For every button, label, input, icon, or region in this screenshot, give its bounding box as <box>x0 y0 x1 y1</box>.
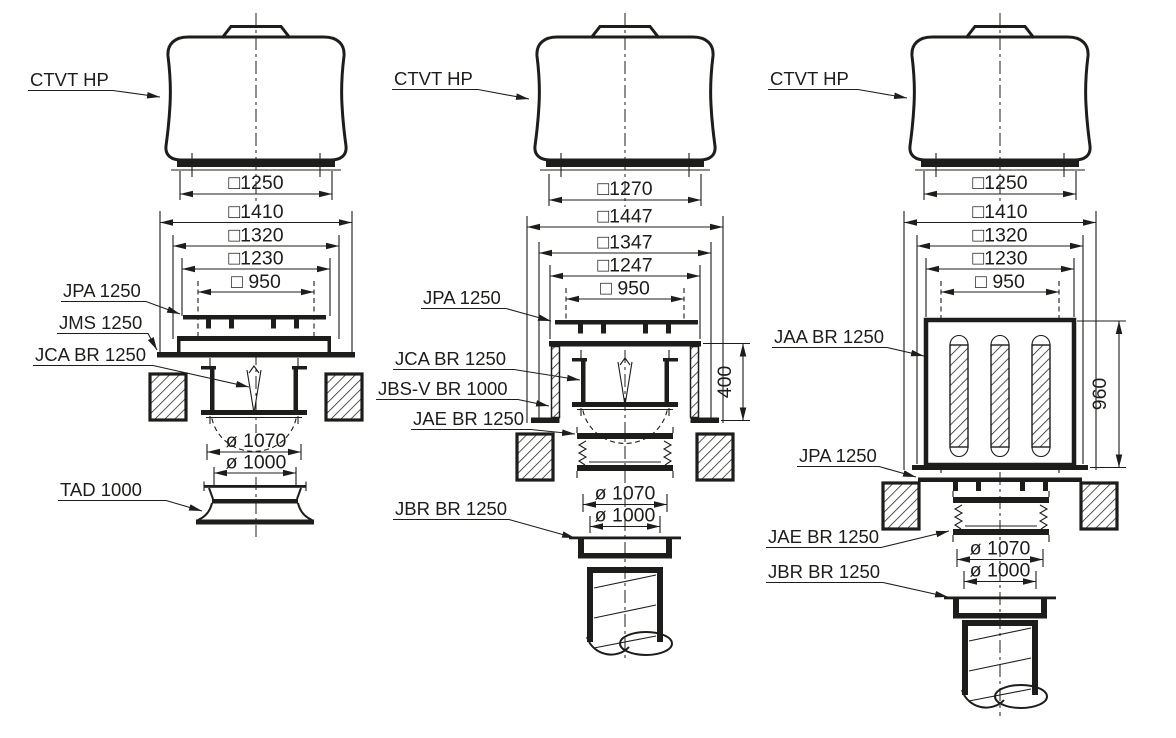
jpa-plate-bar <box>918 478 1082 483</box>
dim-text: ø 1000 <box>595 505 656 527</box>
jaa-bottom-flange <box>912 465 1088 470</box>
part-callout: JPA 1250 <box>63 280 141 301</box>
jpa-plate <box>183 315 326 329</box>
jbsv-wall-right <box>691 347 699 418</box>
diagram-middle: □1270 □1447 □1347 □1247 □ 950 <box>376 13 750 662</box>
jpa-tab <box>953 482 958 491</box>
jpa-tab <box>666 325 671 334</box>
jca-leader <box>33 366 249 388</box>
dim-text: □1347 <box>597 232 652 254</box>
jpa-tab <box>1043 482 1048 491</box>
part-callout: TAD 1000 <box>60 479 142 500</box>
technical-drawing-page: □1250 □1410 □1320 □1230 □ 950 <box>0 0 1176 738</box>
tad-transition-base <box>196 482 314 525</box>
part-callout: JBR BR 1250 <box>395 498 507 519</box>
dim-text: ø 1070 <box>970 538 1031 560</box>
roof-slab-right <box>697 434 733 480</box>
part-callout: JBS-V BR 1000 <box>378 378 508 399</box>
jms-base-bar <box>157 352 355 358</box>
jpa-plate-bar <box>555 320 698 325</box>
part-callout: JMS 1250 <box>59 312 142 333</box>
jpa-plate <box>555 320 698 334</box>
jpa-tab <box>643 325 648 334</box>
height-dim-960: 960 <box>1077 321 1126 468</box>
jpa-tab <box>294 320 299 329</box>
height-dim-400: 400 <box>703 344 750 421</box>
jaa-silencer <box>912 320 1088 470</box>
callouts: CTVT HP JAA BR 1250 JPA 1250 JAE BR 1250… <box>766 68 949 597</box>
dim-text: □1230 <box>228 248 283 270</box>
part-callout: JAA BR 1250 <box>774 326 884 347</box>
roof-slab-left <box>517 434 553 480</box>
roof-slab-right <box>1081 483 1117 529</box>
roof-slab-left <box>883 483 919 529</box>
jpa-leader <box>797 467 916 478</box>
dim-text: □1270 <box>597 178 652 200</box>
silencer-baffle <box>1032 336 1050 457</box>
tad-top-rim <box>204 485 306 488</box>
dim-text: □1320 <box>972 225 1027 247</box>
jbr-leader <box>766 583 948 598</box>
jpa-tab <box>601 325 606 334</box>
dim-text: ø 1000 <box>970 560 1031 582</box>
fan-mounting-drawing: □1250 □1410 □1320 □1230 □ 950 <box>0 0 1176 738</box>
silencer-baffle <box>950 336 968 457</box>
jae-flexible-connector <box>953 491 1049 542</box>
tad-mid-bar <box>212 499 298 504</box>
jpa-tab <box>206 320 211 329</box>
tad-bottom-rim <box>196 520 314 525</box>
fan-leader <box>768 90 907 99</box>
roof-slab-left <box>150 374 186 420</box>
dim-text: □1247 <box>597 255 652 277</box>
part-callout: JAE BR 1250 <box>768 526 879 547</box>
dim-text: □1410 <box>228 201 283 223</box>
tad-flare <box>198 503 312 520</box>
part-callout: JCA BR 1250 <box>395 348 506 369</box>
dim-text: ø 1000 <box>226 452 287 474</box>
jbsv-flange-right <box>691 418 720 424</box>
fan-callout: CTVT HP <box>770 68 849 89</box>
dim-text: ø 1070 <box>595 483 656 505</box>
dim-text: 400 <box>714 366 736 399</box>
fan-callout: CTVT HP <box>394 68 473 89</box>
dim-text: □1447 <box>597 206 652 228</box>
part-callout: JPA 1250 <box>423 287 501 308</box>
tad-leader <box>58 501 202 512</box>
jbr-leader <box>393 520 575 539</box>
part-callout: JAE BR 1250 <box>413 408 524 429</box>
diameter-dims: ø 1070 ø 1000 <box>207 430 301 487</box>
jpa-plate-bar <box>183 315 326 320</box>
dim-text: ø 1070 <box>226 430 287 452</box>
dim-text: □ 950 <box>975 271 1025 293</box>
dim-text: □1410 <box>972 201 1027 223</box>
circular-duct <box>962 620 1047 708</box>
part-callout: JCA BR 1250 <box>35 344 146 365</box>
jms-side-left <box>177 341 181 353</box>
dim-text: 960 <box>1089 378 1111 411</box>
jaa-leader <box>772 348 924 357</box>
diagram-left: □1250 □1410 □1320 □1230 □ 950 <box>28 13 362 537</box>
diameter-dims: ø 1070 ø 1000 <box>957 538 1043 590</box>
dim-text: □ 950 <box>600 278 650 300</box>
diameter-dims: ø 1070 ø 1000 <box>583 483 667 534</box>
circular-duct <box>587 567 672 655</box>
jms-support-frame <box>157 336 355 358</box>
jms-side-right <box>328 341 332 353</box>
jpa-tab <box>1020 482 1025 491</box>
dim-text: □1230 <box>972 248 1027 270</box>
jbsv-top-bar <box>549 341 701 347</box>
part-callout: JPA 1250 <box>799 445 877 466</box>
fan-leader <box>28 91 160 98</box>
part-callout: JBR BR 1250 <box>768 561 880 582</box>
jpa-tab <box>976 482 981 491</box>
dim-text: □1320 <box>228 225 283 247</box>
callouts: CTVT HP JPA 1250 JMS 1250 JCA BR 1250 TA… <box>28 69 249 511</box>
fan-leader <box>392 90 529 100</box>
jpa-tab <box>229 320 234 329</box>
roof-slab-right <box>326 374 362 420</box>
jms-top-bar <box>177 336 331 341</box>
jpa-leader <box>421 309 551 322</box>
dim-text: □ 950 <box>231 271 281 293</box>
jbsv-flange-left <box>531 418 560 424</box>
jbsv-wall-left <box>552 347 560 418</box>
jpa-tab <box>271 320 276 329</box>
jbsv-leader <box>376 400 549 407</box>
dim-text: □1250 <box>972 172 1027 194</box>
fan-callout: CTVT HP <box>30 69 109 90</box>
jpa-tab <box>578 325 583 334</box>
dim-text: □1250 <box>228 172 283 194</box>
tad-neck <box>209 488 301 499</box>
diagram-right: □1250 □1410 □1320 □1230 □ 950 <box>766 13 1126 716</box>
silencer-baffle <box>991 336 1009 457</box>
